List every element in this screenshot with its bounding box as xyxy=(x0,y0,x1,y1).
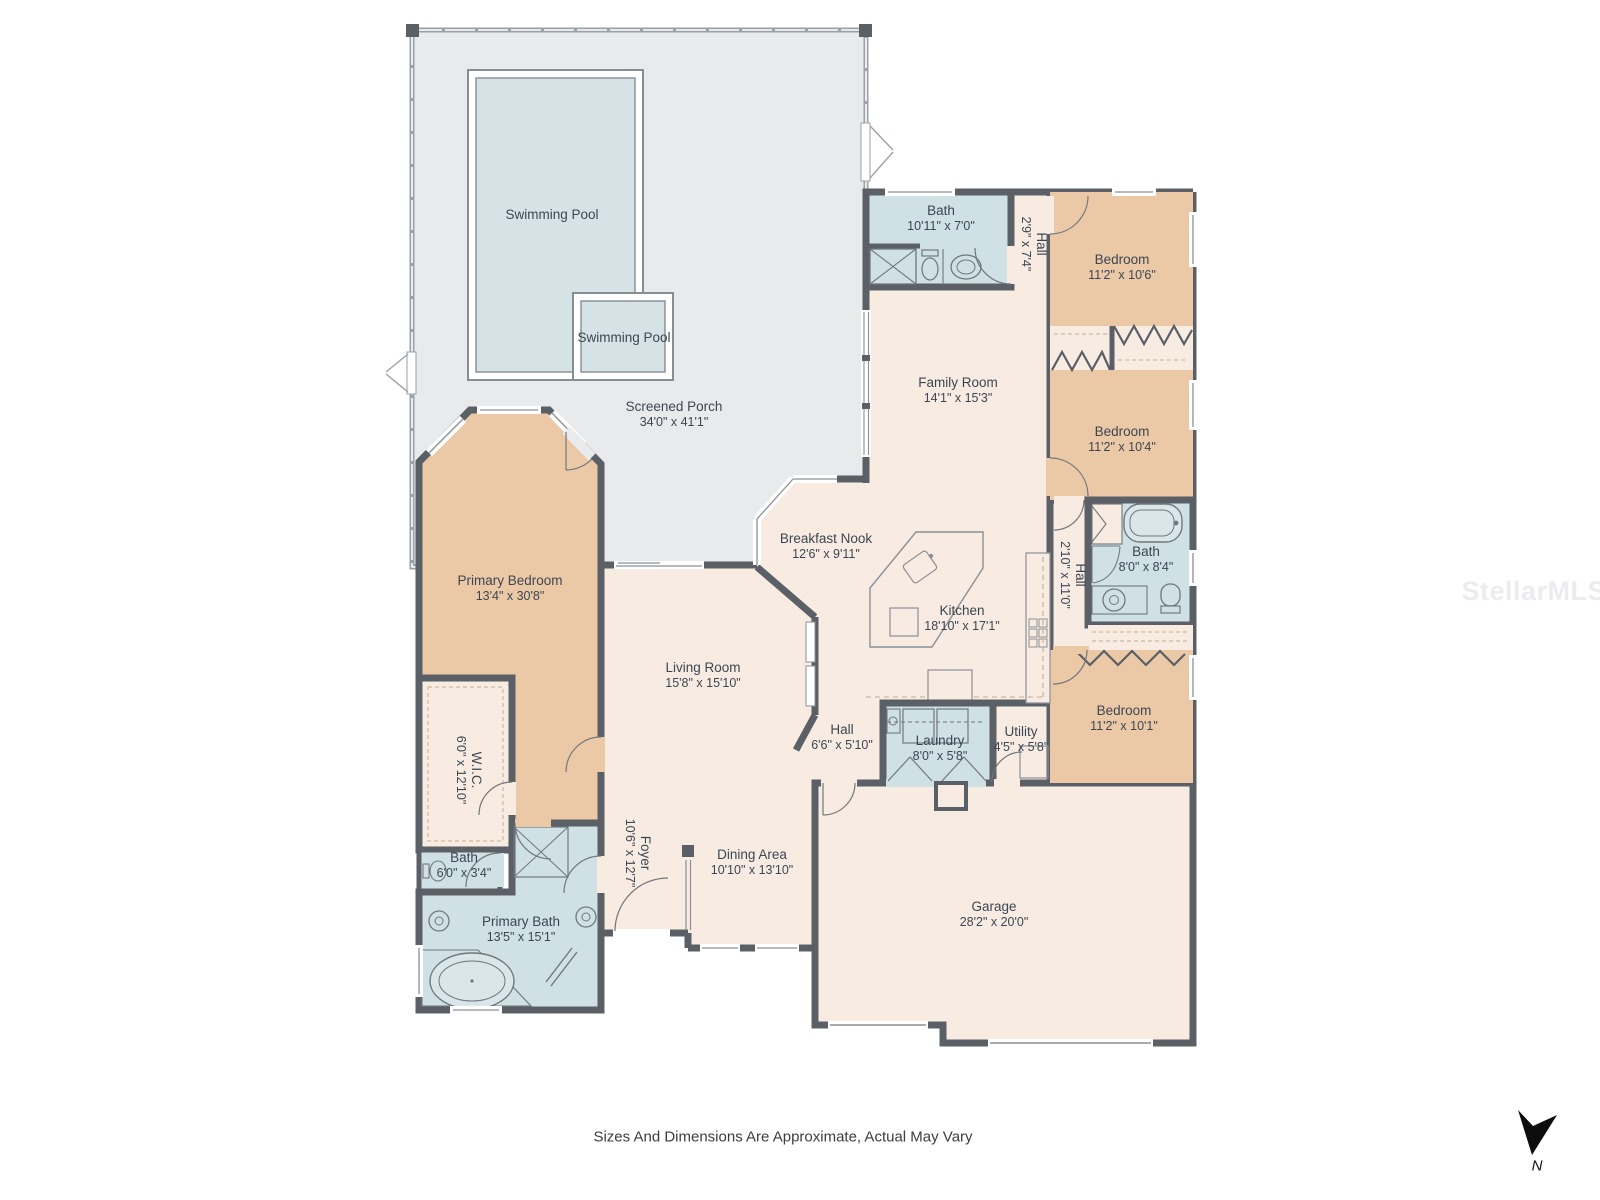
north-label: N xyxy=(1532,1158,1543,1175)
label-bedroom1: Bedroom 11'2" x 10'6" xyxy=(1088,252,1156,284)
label-foyer: Foyer 10'6" x 12'7" xyxy=(621,819,653,888)
closets-bedrooms-1-2 xyxy=(1050,326,1193,370)
floorplan-drawing xyxy=(0,0,1600,1200)
label-screened-porch: Screened Porch 34'0" x 41'1" xyxy=(626,399,723,431)
label-hall-center: Hall 6'6" x 5'10" xyxy=(811,722,873,754)
label-swimming-pool: Swimming Pool xyxy=(505,207,598,223)
label-bath-right: Bath 8'0" x 8'4" xyxy=(1119,544,1174,576)
label-bath-top: Bath 10'11" x 7'0" xyxy=(907,203,975,235)
label-primary-bath: Primary Bath 13'5" x 15'1" xyxy=(482,914,560,946)
label-bath-small: Bath 6'0" x 3'4" xyxy=(437,850,492,882)
label-primary-bedroom: Primary Bedroom 13'4" x 30'8" xyxy=(457,573,562,605)
label-bedroom2: Bedroom 11'2" x 10'4" xyxy=(1088,424,1156,456)
label-kitchen: Kitchen 18'10" x 17'1" xyxy=(924,603,1000,635)
disclaimer-text: Sizes And Dimensions Are Approximate, Ac… xyxy=(593,1129,972,1146)
room-name: Swimming Pool xyxy=(577,330,670,346)
stellar-mls-watermark: StellarMLS xyxy=(1426,576,1600,607)
label-family-room: Family Room 14'1" x 15'3" xyxy=(918,375,998,407)
floorplan-page: Swimming Pool Swimming Pool Screened Por… xyxy=(0,0,1600,1200)
north-arrow xyxy=(1518,1110,1557,1155)
label-hall-right: Hall 2'10" x 11'0" xyxy=(1056,541,1088,609)
label-hall-top: Hall 2'9" x 7'4" xyxy=(1017,217,1049,272)
label-bedroom3: Bedroom 11'2" x 10'1" xyxy=(1090,703,1158,735)
room-name: Swimming Pool xyxy=(505,207,598,223)
label-wic: W.I.C. 6'0" x 12'10" xyxy=(452,736,484,805)
label-utility: Utility 4'5" x 5'8" xyxy=(994,724,1049,756)
family-room-glass-wall xyxy=(861,310,871,457)
label-breakfast-nook: Breakfast Nook 12'6" x 9'11" xyxy=(780,531,872,563)
label-dining-area: Dining Area 10'10" x 13'10" xyxy=(711,847,793,879)
label-living-room: Living Room 15'8" x 15'10" xyxy=(665,660,741,692)
label-swimming-pool-spa: Swimming Pool xyxy=(577,330,670,346)
label-garage: Garage 28'2" x 20'0" xyxy=(960,899,1029,931)
label-laundry: Laundry 8'0" x 5'8" xyxy=(913,733,968,765)
